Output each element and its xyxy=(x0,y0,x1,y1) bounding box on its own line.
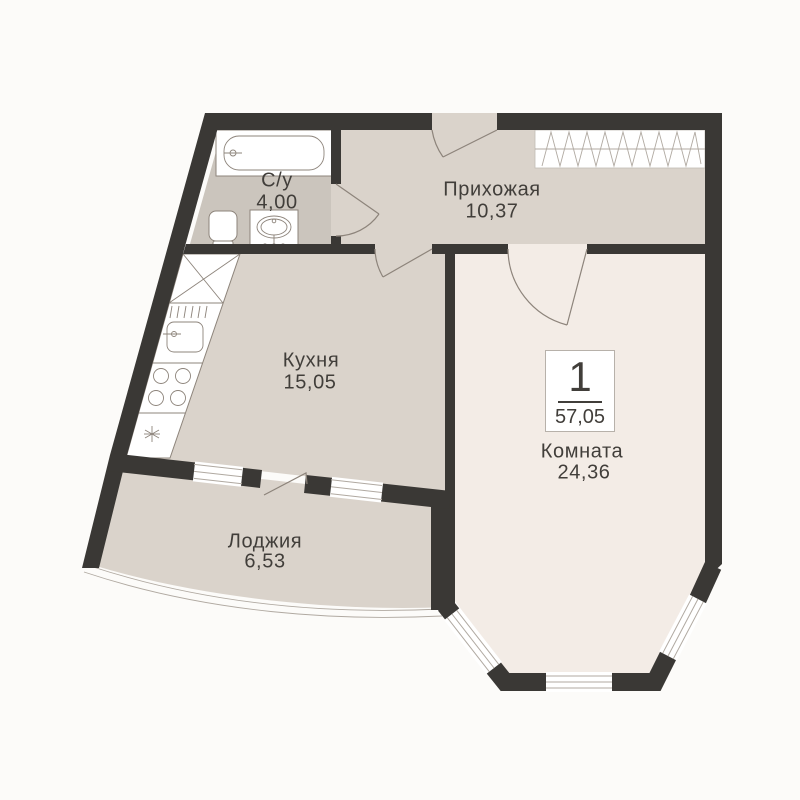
bathroom-label: С/у xyxy=(261,170,293,193)
kitchen-area: 15,05 xyxy=(283,372,336,395)
loggia-window-right xyxy=(331,480,382,500)
unit-number: 1 xyxy=(568,355,591,399)
hallway-bottom-wall-a xyxy=(341,244,375,254)
right-exterior-wall xyxy=(705,113,722,580)
toilet-icon xyxy=(209,211,237,249)
top-wall-right xyxy=(497,113,722,130)
bay-window-bottom xyxy=(546,676,612,688)
loggia-right-wall xyxy=(431,492,455,610)
hallway-label: Прихожая xyxy=(443,179,540,202)
bathroom-right-wall-upper xyxy=(331,130,341,184)
bathroom-door-opening xyxy=(331,184,341,236)
room-door-opening xyxy=(508,244,587,254)
bathroom-right-wall-lower xyxy=(331,236,341,244)
hallway-bottom-wall-b xyxy=(432,244,508,254)
top-wall-left xyxy=(205,113,432,130)
room-area: 24,36 xyxy=(557,462,610,485)
kitchen-room-wall xyxy=(445,254,455,492)
bathroom-bottom-wall xyxy=(183,244,341,254)
kitchen-label: Кухня xyxy=(283,350,340,373)
hallway-area: 10,37 xyxy=(465,201,518,224)
hallway-bottom-wall-c xyxy=(587,244,705,254)
floorplan-page: С/у 4,00 Прихожая 10,37 Кухня 15,05 Комн… xyxy=(0,0,800,800)
unit-badge-divider xyxy=(558,401,602,403)
room-label: Комната xyxy=(541,441,624,464)
unit-badge: 1 57,05 xyxy=(545,350,615,432)
wardrobe-icon xyxy=(535,130,705,168)
floorplan-drawing xyxy=(0,0,800,800)
loggia-area: 6,53 xyxy=(244,551,285,574)
entrance-opening xyxy=(432,113,497,130)
loggia-window-left xyxy=(194,464,242,483)
unit-total-area: 57,05 xyxy=(555,406,605,428)
bathroom-area: 4,00 xyxy=(256,192,297,215)
kitchen-door-opening xyxy=(375,244,432,254)
